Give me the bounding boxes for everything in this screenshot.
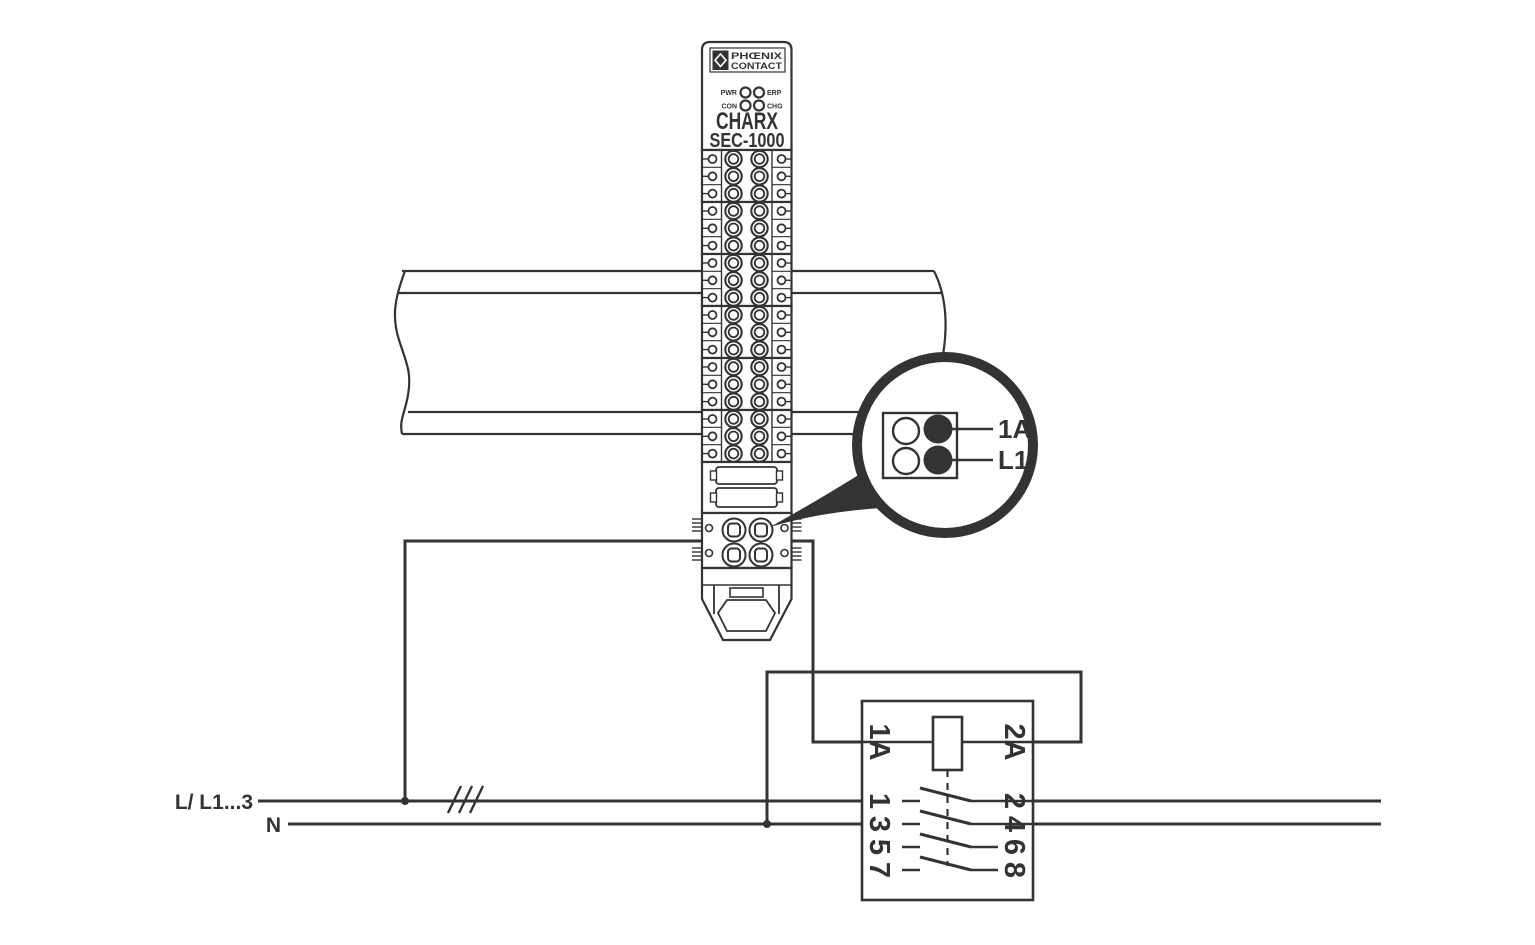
din-rail-break-left bbox=[395, 271, 409, 434]
terminal-group-3 bbox=[702, 254, 792, 306]
junction-dot-neutral bbox=[763, 820, 771, 828]
callout-terminal-unused-bottom bbox=[893, 448, 919, 474]
contact-label-8: 8 bbox=[998, 862, 1030, 878]
coil-terminal-label-1a: 1A bbox=[863, 723, 895, 760]
charx-device: PHŒNIX CONTACT PWR ERP CON CHG CHARX SEC… bbox=[692, 42, 802, 640]
terminal-group-1 bbox=[702, 150, 792, 202]
wire-1a-to-coil bbox=[792, 541, 863, 742]
wiring-diagram-canvas: L/ L1...3 N bbox=[0, 0, 1535, 945]
callout-terminal-1a bbox=[924, 415, 953, 444]
din-rail-break-right bbox=[934, 271, 946, 355]
brand-name-line2: CONTACT bbox=[731, 61, 782, 72]
magnifier-callout: 1A L1 bbox=[770, 357, 1033, 533]
power-terminal-1a bbox=[728, 524, 740, 537]
contact-label-6: 6 bbox=[998, 839, 1030, 855]
contactor-coil bbox=[933, 717, 962, 770]
latch-body bbox=[718, 600, 775, 631]
terminal-strip bbox=[702, 150, 792, 462]
contact-label-7: 7 bbox=[863, 862, 895, 878]
contact-label-5: 5 bbox=[863, 839, 895, 855]
slot-opening-1 bbox=[716, 467, 777, 484]
device-model-line2: SEC-1000 bbox=[710, 130, 785, 152]
led-pwr-icon bbox=[741, 88, 751, 98]
connector-slots bbox=[702, 462, 792, 513]
contact-label-4: 4 bbox=[998, 816, 1030, 832]
terminal-group-4 bbox=[702, 306, 792, 358]
power-terminal-l1 bbox=[728, 549, 740, 562]
neutral-line-label: N bbox=[266, 814, 281, 837]
power-terminal-bottom-right bbox=[755, 549, 767, 562]
phase-line-label: L/ L1...3 bbox=[175, 791, 253, 814]
wire-l1-to-phase bbox=[405, 541, 702, 801]
callout-terminal-unused-top bbox=[893, 418, 919, 444]
led-erp-icon bbox=[754, 88, 764, 98]
contact-label-3: 3 bbox=[863, 816, 895, 832]
power-terminal-top-right bbox=[755, 524, 767, 537]
charx-wiring-diagram: L/ L1...3 N bbox=[0, 0, 1535, 945]
multiphase-slash-marks bbox=[448, 786, 483, 813]
callout-label-1a: 1A bbox=[998, 414, 1031, 444]
terminal-group-5 bbox=[702, 358, 792, 410]
contactor-symbol: 1A 2A 1 3 5 7 2 4 6 8 bbox=[862, 701, 1033, 900]
terminal-group-2 bbox=[702, 202, 792, 254]
wiring bbox=[258, 541, 1381, 828]
led-label-erp: ERP bbox=[767, 90, 782, 97]
terminal-group-6 bbox=[702, 410, 792, 462]
coil-terminal-label-2a: 2A bbox=[998, 723, 1030, 760]
contact-label-2: 2 bbox=[998, 793, 1030, 809]
slot-opening-2 bbox=[716, 488, 777, 507]
callout-label-l1: L1 bbox=[998, 445, 1028, 475]
callout-terminal-l1 bbox=[924, 446, 953, 475]
latch-slider bbox=[730, 588, 763, 597]
contact-label-1: 1 bbox=[863, 793, 895, 809]
junction-dot-phase bbox=[401, 797, 409, 805]
phoenix-contact-logo: PHŒNIX CONTACT bbox=[710, 48, 785, 72]
led-label-pwr: PWR bbox=[721, 90, 737, 97]
din-latch-foot bbox=[702, 568, 792, 640]
